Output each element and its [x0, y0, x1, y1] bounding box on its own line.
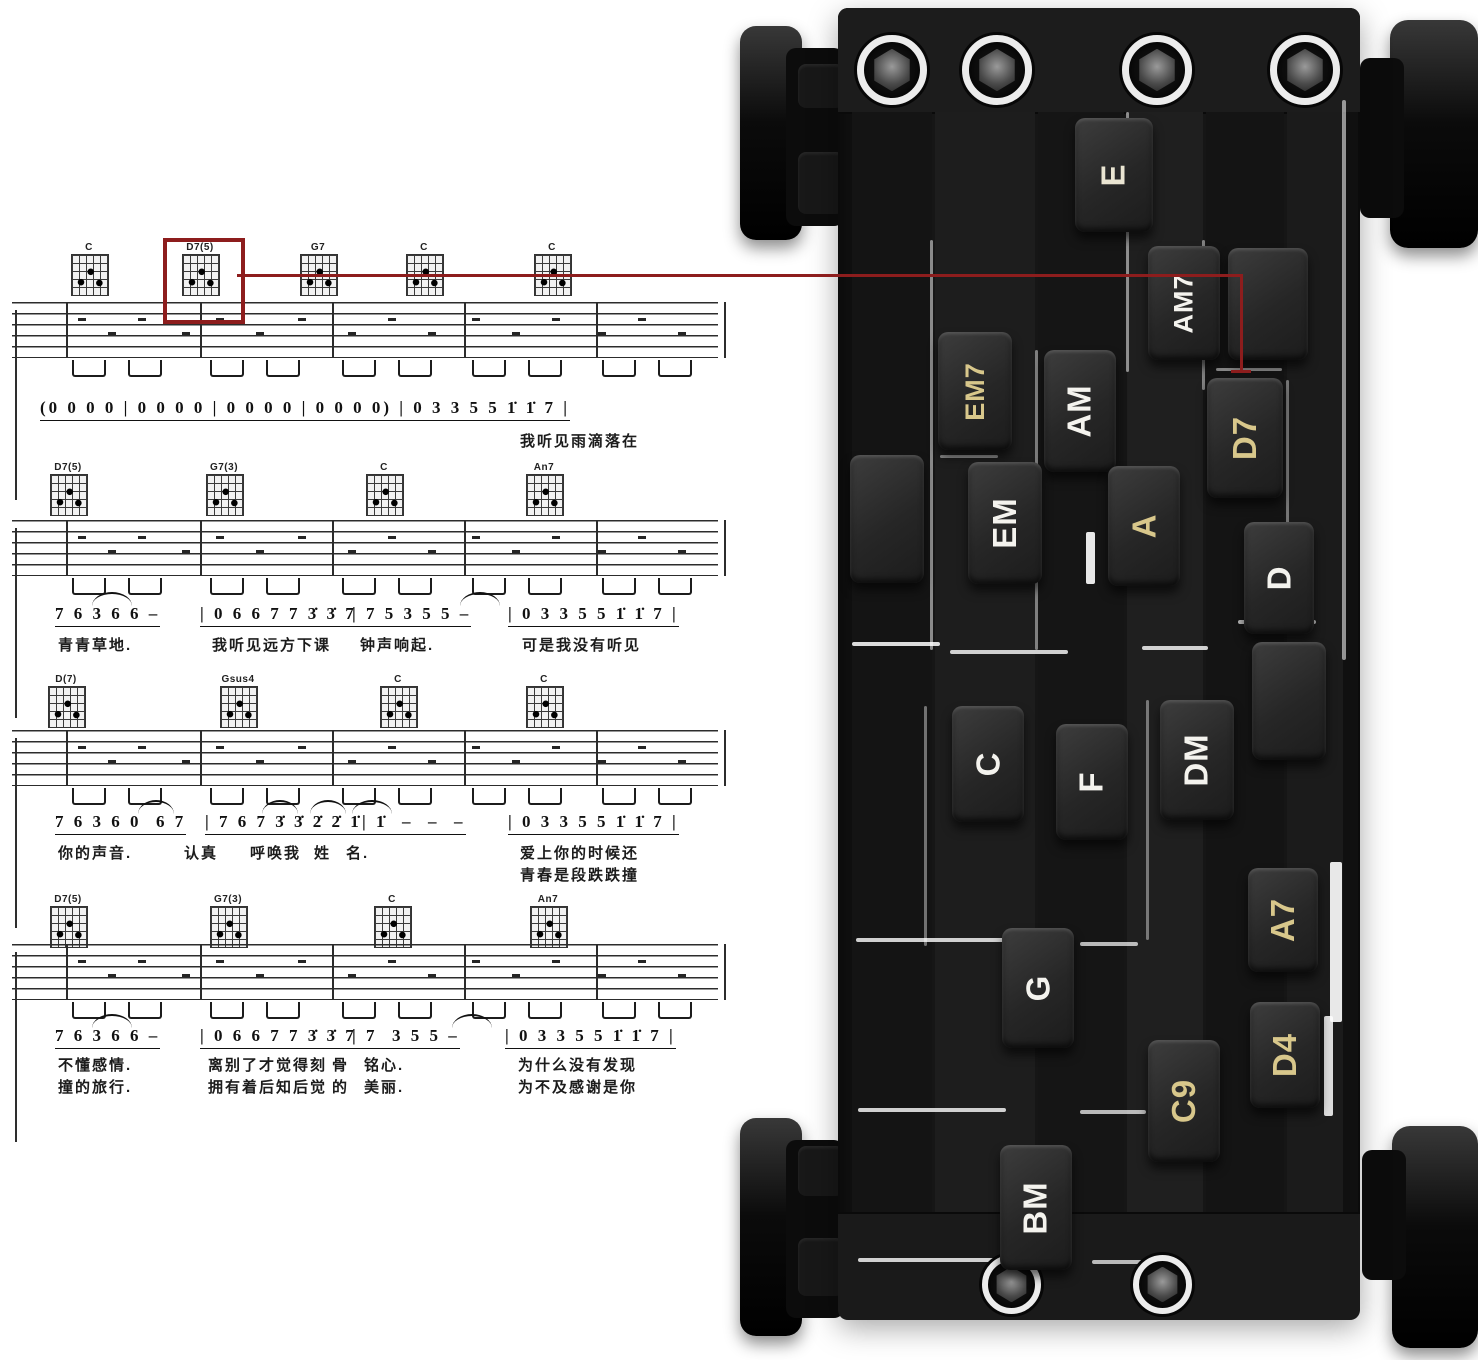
note-mark: [216, 960, 224, 963]
note-mark: [678, 550, 686, 553]
hex-nut-icon: [995, 1267, 1029, 1303]
chord-name-C: C: [54, 242, 124, 253]
chord-key-c[interactable]: C: [952, 706, 1024, 822]
chord-key-em[interactable]: EM: [968, 462, 1042, 584]
staff-barline: [66, 730, 68, 786]
note-mark: [598, 974, 606, 977]
chord-key-label: A7: [1264, 898, 1302, 942]
chord-key-label: C: [969, 752, 1007, 777]
note-beam: [528, 1002, 562, 1019]
note-beam: [528, 788, 562, 805]
chord-name-G7(3): G7(3): [189, 462, 259, 473]
note-mark: [298, 960, 306, 963]
staff-system-1: [12, 302, 718, 358]
note-mark: [678, 332, 686, 335]
connector-vertical-line: [1240, 274, 1243, 372]
staff-barline: [724, 730, 726, 786]
notation-numbers: | 0 3 3 5 5 1̇ 1̇ 7 |: [508, 604, 679, 627]
note-mark: [256, 974, 264, 977]
chord-key-d7[interactable]: D7: [1207, 378, 1283, 498]
lyric-text: 为不及感谢是你: [518, 1076, 637, 1097]
staff-barline: [464, 730, 466, 786]
note-mark: [256, 550, 264, 553]
chord-diagram-G7(3): [206, 474, 244, 516]
panel-highlight: [858, 1108, 1006, 1112]
note-mark: [388, 318, 396, 321]
notation-numbers: | 1̇ – – –: [362, 812, 466, 835]
lyric-text: 你的声音.: [58, 842, 132, 863]
notation-numbers: | 7 3 5 5 –: [352, 1026, 460, 1049]
chord-diagram-D(7): [48, 686, 86, 728]
staff-system-2: [12, 520, 718, 576]
chord-key-a7[interactable]: A7: [1248, 868, 1318, 972]
chord-key-a[interactable]: A: [1108, 466, 1180, 586]
staff-barline: [66, 302, 68, 358]
panel-highlight: [1330, 862, 1342, 1022]
notation-numbers: 7 6 3 6 6 –: [55, 1026, 160, 1049]
note-mark: [512, 332, 520, 335]
panel-highlight: [858, 1258, 1008, 1262]
panel-highlight: [856, 938, 1006, 942]
page-edge-line: [15, 528, 17, 718]
note-mark: [138, 536, 146, 539]
chord-key-label: AM: [1061, 384, 1099, 437]
note-mark: [348, 974, 356, 977]
note-beam: [128, 360, 162, 377]
note-beam: [528, 360, 562, 377]
staff-barline: [464, 302, 466, 358]
chord-diagram-An7: [530, 906, 568, 948]
blank-key[interactable]: [850, 455, 924, 583]
note-mark: [428, 332, 436, 335]
note-beam: [472, 788, 506, 805]
note-mark: [108, 332, 116, 335]
note-mark: [388, 960, 396, 963]
note-beam: [210, 788, 244, 805]
staff-barline: [200, 944, 202, 1000]
staff-barline: [596, 520, 598, 576]
note-mark: [108, 550, 116, 553]
note-beam: [658, 578, 692, 595]
note-beam: [658, 788, 692, 805]
lyric-text: 钟声响起.: [360, 634, 434, 655]
note-mark: [256, 332, 264, 335]
note-mark: [78, 536, 86, 539]
note-mark: [512, 974, 520, 977]
note-mark: [598, 332, 606, 335]
chord-key-g[interactable]: G: [1002, 928, 1074, 1048]
lyric-text: 铭心.: [364, 1054, 404, 1075]
note-mark: [428, 974, 436, 977]
hex-nut-icon: [1285, 49, 1325, 92]
staff-barline: [596, 302, 598, 358]
lyric-text: 青春是段跌跌撞: [520, 864, 639, 885]
chord-key-label: EM7: [960, 362, 991, 421]
note-mark: [138, 746, 146, 749]
panel-highlight: [1324, 1016, 1333, 1116]
note-beam: [266, 360, 300, 377]
notation-numbers: | 0 3 3 5 5 1̇ 1̇ 7 |: [508, 812, 679, 835]
chord-key-label: EM: [986, 497, 1024, 549]
note-mark: [678, 760, 686, 763]
lyric-text: 名.: [346, 842, 369, 863]
note-beam: [398, 578, 432, 595]
note-mark: [552, 536, 560, 539]
note-mark: [552, 318, 560, 321]
staff-barline: [596, 730, 598, 786]
clamp-top-right-inner: [1360, 58, 1404, 218]
chord-key-label: C9: [1165, 1079, 1203, 1123]
note-mark: [138, 960, 146, 963]
note-beam: [266, 1002, 300, 1019]
chord-diagram-D7(5): [50, 906, 88, 948]
tie-arc: [310, 800, 346, 814]
chord-name-An7: An7: [513, 894, 583, 905]
chord-key-label: BM: [1017, 1181, 1055, 1234]
note-beam: [602, 360, 636, 377]
note-mark: [598, 550, 606, 553]
staff-barline: [332, 302, 334, 358]
chord-diagram-C: [380, 686, 418, 728]
note-mark: [638, 536, 646, 539]
note-mark: [428, 550, 436, 553]
note-beam: [342, 1002, 376, 1019]
note-mark: [182, 550, 190, 553]
chord-name-C: C: [363, 674, 433, 685]
chord-key-label: A: [1125, 514, 1163, 539]
note-mark: [388, 746, 396, 749]
lyric-text: 爱上你的时候还: [520, 842, 639, 863]
chord-diagram-C: [366, 474, 404, 516]
chord-name-D(7): D(7): [31, 674, 101, 685]
note-beam: [72, 788, 106, 805]
chord-diagram-C: [71, 254, 109, 296]
note-beam: [210, 578, 244, 595]
note-mark: [428, 760, 436, 763]
lyric-text: 我听见远方下课: [212, 634, 331, 655]
notation-numbers: | 0 3 3 5 5 1̇ 1̇ 7 |: [505, 1026, 676, 1049]
lyric-text: 为什么没有发现: [518, 1054, 637, 1075]
staff-barline: [332, 730, 334, 786]
panel-highlight: [1080, 1110, 1146, 1114]
note-beam: [472, 360, 506, 377]
chord-name-D7(5): D7(5): [33, 462, 103, 473]
note-mark: [78, 960, 86, 963]
chord-name-C: C: [349, 462, 419, 473]
note-beam: [602, 1002, 636, 1019]
notation-numbers: | 0 6 6 7 7 3̇ 3̇ 7: [200, 604, 357, 627]
staff-barline: [464, 520, 466, 576]
lyric-text: 离别了才觉得刻: [208, 1054, 327, 1075]
staff-barline: [66, 944, 68, 1000]
staff-barline: [596, 944, 598, 1000]
note-beam: [342, 360, 376, 377]
chord-name-D7(5): D7(5): [33, 894, 103, 905]
highlight-box-d7-chord: [163, 238, 245, 324]
notation-numbers: | 7 5 3 5 5 –: [352, 604, 471, 627]
chord-name-C: C: [509, 674, 579, 685]
note-beam: [398, 1002, 432, 1019]
panel-highlight: [1080, 942, 1138, 946]
hex-screw-icon: [962, 35, 1032, 105]
chord-key-am7[interactable]: AM7: [1148, 246, 1220, 360]
chord-name-C: C: [517, 242, 587, 253]
hex-screw-icon: [1122, 35, 1192, 105]
hex-nut-icon: [1146, 1267, 1180, 1303]
lyric-text: 撞的旅行.: [58, 1076, 132, 1097]
chord-key-f[interactable]: F: [1056, 724, 1128, 840]
note-beam: [266, 578, 300, 595]
staff-barline: [66, 520, 68, 576]
panel-highlight: [1286, 380, 1289, 530]
hex-screw-icon: [1133, 1255, 1192, 1314]
chord-key-label: F: [1073, 771, 1111, 792]
device-slat: [1345, 112, 1358, 1212]
lyric-text: 认真: [184, 842, 218, 863]
note-beam: [210, 1002, 244, 1019]
note-beam: [398, 360, 432, 377]
note-mark: [256, 760, 264, 763]
note-mark: [512, 760, 520, 763]
panel-highlight: [1142, 646, 1208, 650]
staff-barline: [332, 520, 334, 576]
device-bottom-band: [838, 1212, 1360, 1320]
note-beam: [602, 788, 636, 805]
staff-barline: [724, 944, 726, 1000]
hex-screw-icon: [857, 35, 927, 105]
lyric-text: 美丽.: [364, 1076, 404, 1097]
note-mark: [182, 332, 190, 335]
chord-key-dm[interactable]: DM: [1160, 700, 1234, 820]
note-mark: [638, 960, 646, 963]
note-beam: [658, 1002, 692, 1019]
note-mark: [678, 974, 686, 977]
chord-name-An7: An7: [509, 462, 579, 473]
note-mark: [216, 536, 224, 539]
note-beam: [602, 578, 636, 595]
note-mark: [108, 760, 116, 763]
staff-system-3: [12, 730, 718, 786]
note-mark: [552, 960, 560, 963]
staff-barline: [464, 944, 466, 1000]
note-mark: [348, 332, 356, 335]
panel-highlight: [1342, 100, 1346, 660]
page-edge-line: [15, 310, 17, 500]
lyric-text: 不懂感情.: [58, 1054, 132, 1075]
note-mark: [78, 746, 86, 749]
chord-key-label: G: [1019, 975, 1057, 1002]
staff-barline: [724, 302, 726, 358]
hex-nut-icon: [977, 49, 1017, 92]
panel-highlight: [930, 240, 933, 650]
chord-diagram-D7(5): [50, 474, 88, 516]
staff-barline: [200, 730, 202, 786]
chord-key-label: DM: [1178, 733, 1216, 786]
notation-numbers: (0 0 0 0 | 0 0 0 0 | 0 0 0 0 | 0 0 0 0) …: [40, 398, 570, 421]
note-mark: [472, 318, 480, 321]
lyric-text: 姓: [314, 842, 331, 863]
chord-key-d[interactable]: D: [1244, 522, 1314, 634]
notation-numbers: 7 6 3 6 0 6 7: [55, 812, 186, 835]
note-mark: [182, 760, 190, 763]
chord-key-bm[interactable]: BM: [1000, 1145, 1072, 1270]
note-mark: [598, 760, 606, 763]
note-beam: [72, 578, 106, 595]
notation-numbers: | 7 6 7 3̇ 3̇ 2̇ 2̇ 1̇: [205, 812, 362, 835]
chord-key-label: D: [1260, 566, 1298, 591]
panel-highlight: [950, 650, 1068, 654]
note-beam: [210, 360, 244, 377]
note-mark: [512, 550, 520, 553]
staff-barline: [332, 944, 334, 1000]
note-mark: [638, 746, 646, 749]
note-mark: [182, 974, 190, 977]
note-beam: [342, 578, 376, 595]
note-mark: [298, 746, 306, 749]
note-mark: [78, 318, 86, 321]
panel-highlight: [1086, 532, 1095, 584]
chord-key-label: D7: [1226, 416, 1264, 460]
chord-key-em7[interactable]: EM7: [938, 332, 1012, 450]
notation-numbers: | 0 6 6 7 7 3̇ 3̇ 7: [200, 1026, 357, 1049]
chord-name-C: C: [357, 894, 427, 905]
staff-barline: [724, 520, 726, 576]
page-edge-line: [15, 738, 17, 928]
note-mark: [472, 746, 480, 749]
note-beam: [528, 578, 562, 595]
chord-name-G7(3): G7(3): [193, 894, 263, 905]
clamp-bottom-right-inner: [1362, 1150, 1406, 1280]
note-mark: [138, 318, 146, 321]
lyric-text: 呼唤我: [250, 842, 301, 863]
hex-nut-icon: [1137, 49, 1177, 92]
panel-highlight: [940, 455, 998, 458]
connector-horizontal-line: [237, 274, 1243, 277]
connector-arrow-tick: [1231, 370, 1251, 373]
chord-diagram-An7: [526, 474, 564, 516]
note-beam: [128, 578, 162, 595]
chord-key-label: AM7: [1168, 273, 1199, 333]
chord-key-am[interactable]: AM: [1044, 350, 1116, 472]
note-mark: [348, 550, 356, 553]
chord-diagram-G7(3): [210, 906, 248, 948]
note-mark: [216, 746, 224, 749]
chord-key-d4[interactable]: D4: [1250, 1002, 1320, 1108]
note-beam: [128, 1002, 162, 1019]
note-mark: [472, 960, 480, 963]
note-beam: [398, 788, 432, 805]
note-mark: [552, 746, 560, 749]
chord-name-Gsus4: Gsus4: [203, 674, 273, 685]
note-beam: [72, 360, 106, 377]
chord-diagram-C: [374, 906, 412, 948]
chord-diagram-Gsus4: [220, 686, 258, 728]
device-slat: [852, 112, 932, 1212]
blank-key[interactable]: [1252, 642, 1326, 760]
note-mark: [108, 974, 116, 977]
chord-name-C: C: [389, 242, 459, 253]
page-edge-line: [15, 952, 17, 1142]
hex-nut-icon: [872, 49, 912, 92]
note-mark: [298, 318, 306, 321]
lyric-text: 青青草地.: [58, 634, 132, 655]
staff-system-4: [12, 944, 718, 1000]
note-mark: [638, 318, 646, 321]
note-beam: [658, 360, 692, 377]
product-photo: CD7(5)G7CC(0 0 0 0 | 0 0 0 0 | 0 0 0 0 |…: [0, 0, 1478, 1360]
panel-highlight: [924, 706, 927, 946]
chord-key-e[interactable]: E: [1075, 118, 1153, 232]
staff-barline: [200, 520, 202, 576]
chord-key-label: D4: [1266, 1033, 1304, 1077]
panel-highlight: [1146, 700, 1149, 940]
lyric-text: 可是我没有听见: [522, 634, 641, 655]
note-mark: [348, 760, 356, 763]
lyric-text: 拥有着后知后觉: [208, 1076, 327, 1097]
chord-name-G7: G7: [283, 242, 353, 253]
chord-key-label: E: [1095, 163, 1133, 186]
hex-screw-icon: [1270, 35, 1340, 105]
lyric-text: 骨: [332, 1054, 349, 1075]
chord-key-c9[interactable]: C9: [1148, 1040, 1220, 1162]
panel-highlight: [852, 642, 940, 646]
note-mark: [472, 536, 480, 539]
notation-numbers: 7 6 3 6 6 –: [55, 604, 160, 627]
note-mark: [388, 536, 396, 539]
lyric-text: 的: [332, 1076, 349, 1097]
lyric-text: 我听见雨滴落在: [520, 430, 639, 451]
chord-diagram-C: [526, 686, 564, 728]
note-mark: [298, 536, 306, 539]
